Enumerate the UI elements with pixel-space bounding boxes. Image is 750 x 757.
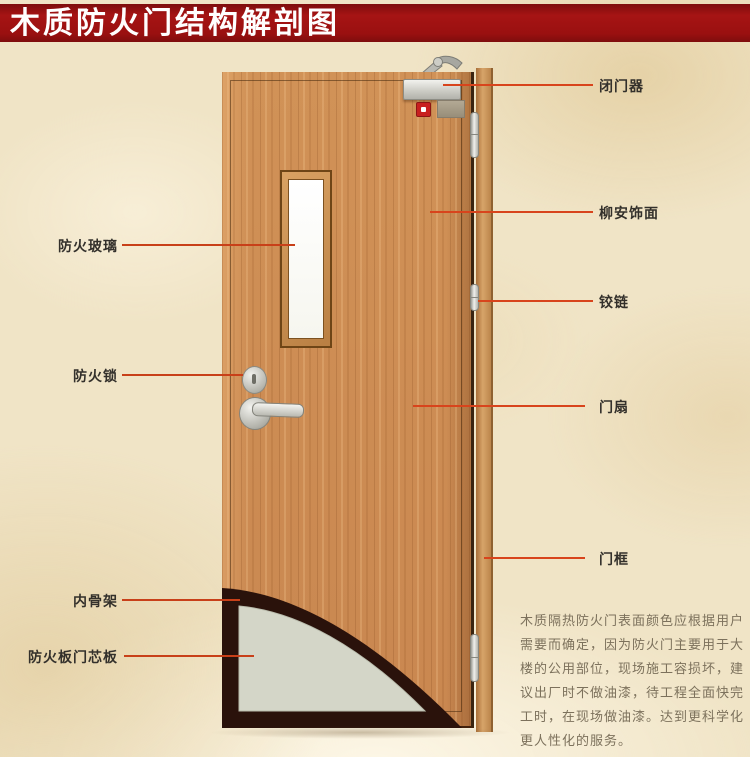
note-line: 楼的公用部位，现场施工容损坏，建 bbox=[520, 657, 750, 681]
core-board-shape bbox=[239, 606, 425, 711]
hinge-bottom bbox=[470, 634, 479, 682]
callout-line-fire-glass bbox=[122, 244, 295, 246]
note-line: 议出厂时不做油漆，待工程全面快完 bbox=[520, 681, 750, 705]
callout-line-door-leaf bbox=[413, 405, 585, 407]
note-line: 更人性化的服务。 bbox=[520, 729, 750, 753]
note-line: 木质隔热防火门表面颜色应根据用户 bbox=[520, 609, 750, 633]
callout-line-core-board bbox=[124, 655, 254, 657]
red-indicator bbox=[416, 102, 431, 117]
label-door-closer: 闭门器 bbox=[599, 76, 644, 96]
label-lauan-veneer: 柳安饰面 bbox=[599, 203, 659, 223]
hinge-top bbox=[470, 112, 479, 158]
door-shadow bbox=[208, 726, 512, 739]
label-door-frame: 门框 bbox=[599, 549, 629, 569]
hinge-middle bbox=[470, 284, 479, 311]
callout-line-hinge bbox=[478, 300, 593, 302]
door-frame-strip bbox=[476, 68, 493, 732]
callout-line-lauan-veneer bbox=[430, 211, 593, 213]
cutaway-section bbox=[222, 580, 471, 728]
door-closer-body bbox=[403, 79, 461, 100]
keyhole-escutcheon bbox=[242, 366, 267, 394]
callout-line-door-frame bbox=[484, 557, 585, 559]
label-fire-glass: 防火玻璃 bbox=[58, 236, 118, 256]
label-hinge: 铰链 bbox=[599, 292, 629, 312]
label-core-board: 防火板门芯板 bbox=[28, 647, 118, 667]
callout-line-inner-skeleton bbox=[122, 599, 240, 601]
label-fire-lock: 防火锁 bbox=[73, 366, 118, 386]
label-door-leaf: 门扇 bbox=[599, 397, 629, 417]
note-line: 需要而确定，因为防火门主要用于大 bbox=[520, 633, 750, 657]
lever-handle bbox=[252, 402, 304, 418]
title-banner: 木质防火门结构解剖图 bbox=[0, 4, 750, 42]
callout-line-fire-lock bbox=[122, 374, 243, 376]
page-title: 木质防火门结构解剖图 bbox=[10, 7, 340, 40]
callout-line-door-closer bbox=[443, 84, 593, 86]
door-leaf bbox=[222, 72, 474, 728]
fire-glass-pane bbox=[288, 179, 324, 339]
glass-window-frame bbox=[280, 170, 332, 348]
closer-label-plate bbox=[437, 100, 465, 118]
note-line: 工时，在现场做油漆。达到更科学化 bbox=[520, 705, 750, 729]
infographic-page: { "title": "木质防火门结构解剖图", "colors": { "ba… bbox=[0, 0, 750, 757]
description-note: 木质隔热防火门表面颜色应根据用户 需要而确定，因为防火门主要用于大 楼的公用部位… bbox=[520, 609, 750, 753]
label-inner-skeleton: 内骨架 bbox=[73, 591, 118, 611]
